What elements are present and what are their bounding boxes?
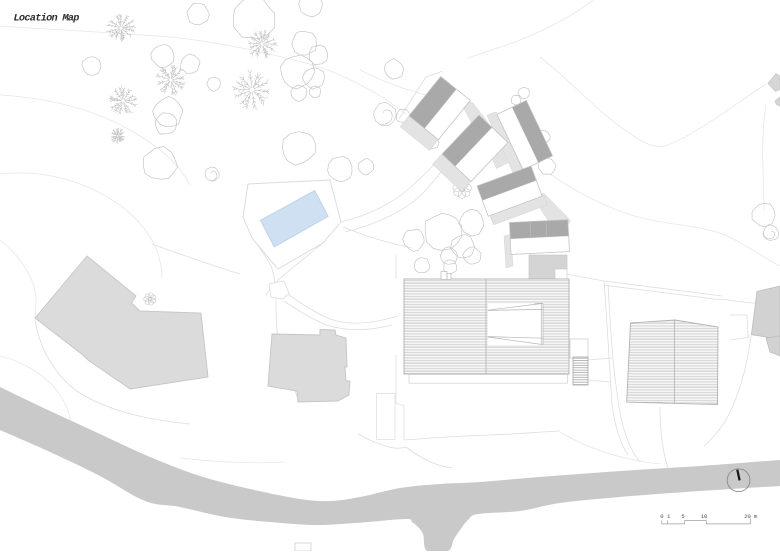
svg-text:Location Map: Location Map bbox=[14, 12, 80, 24]
svg-text:10: 10 bbox=[701, 513, 708, 520]
svg-text:5: 5 bbox=[681, 513, 684, 520]
svg-text:20 m: 20 m bbox=[744, 513, 758, 520]
